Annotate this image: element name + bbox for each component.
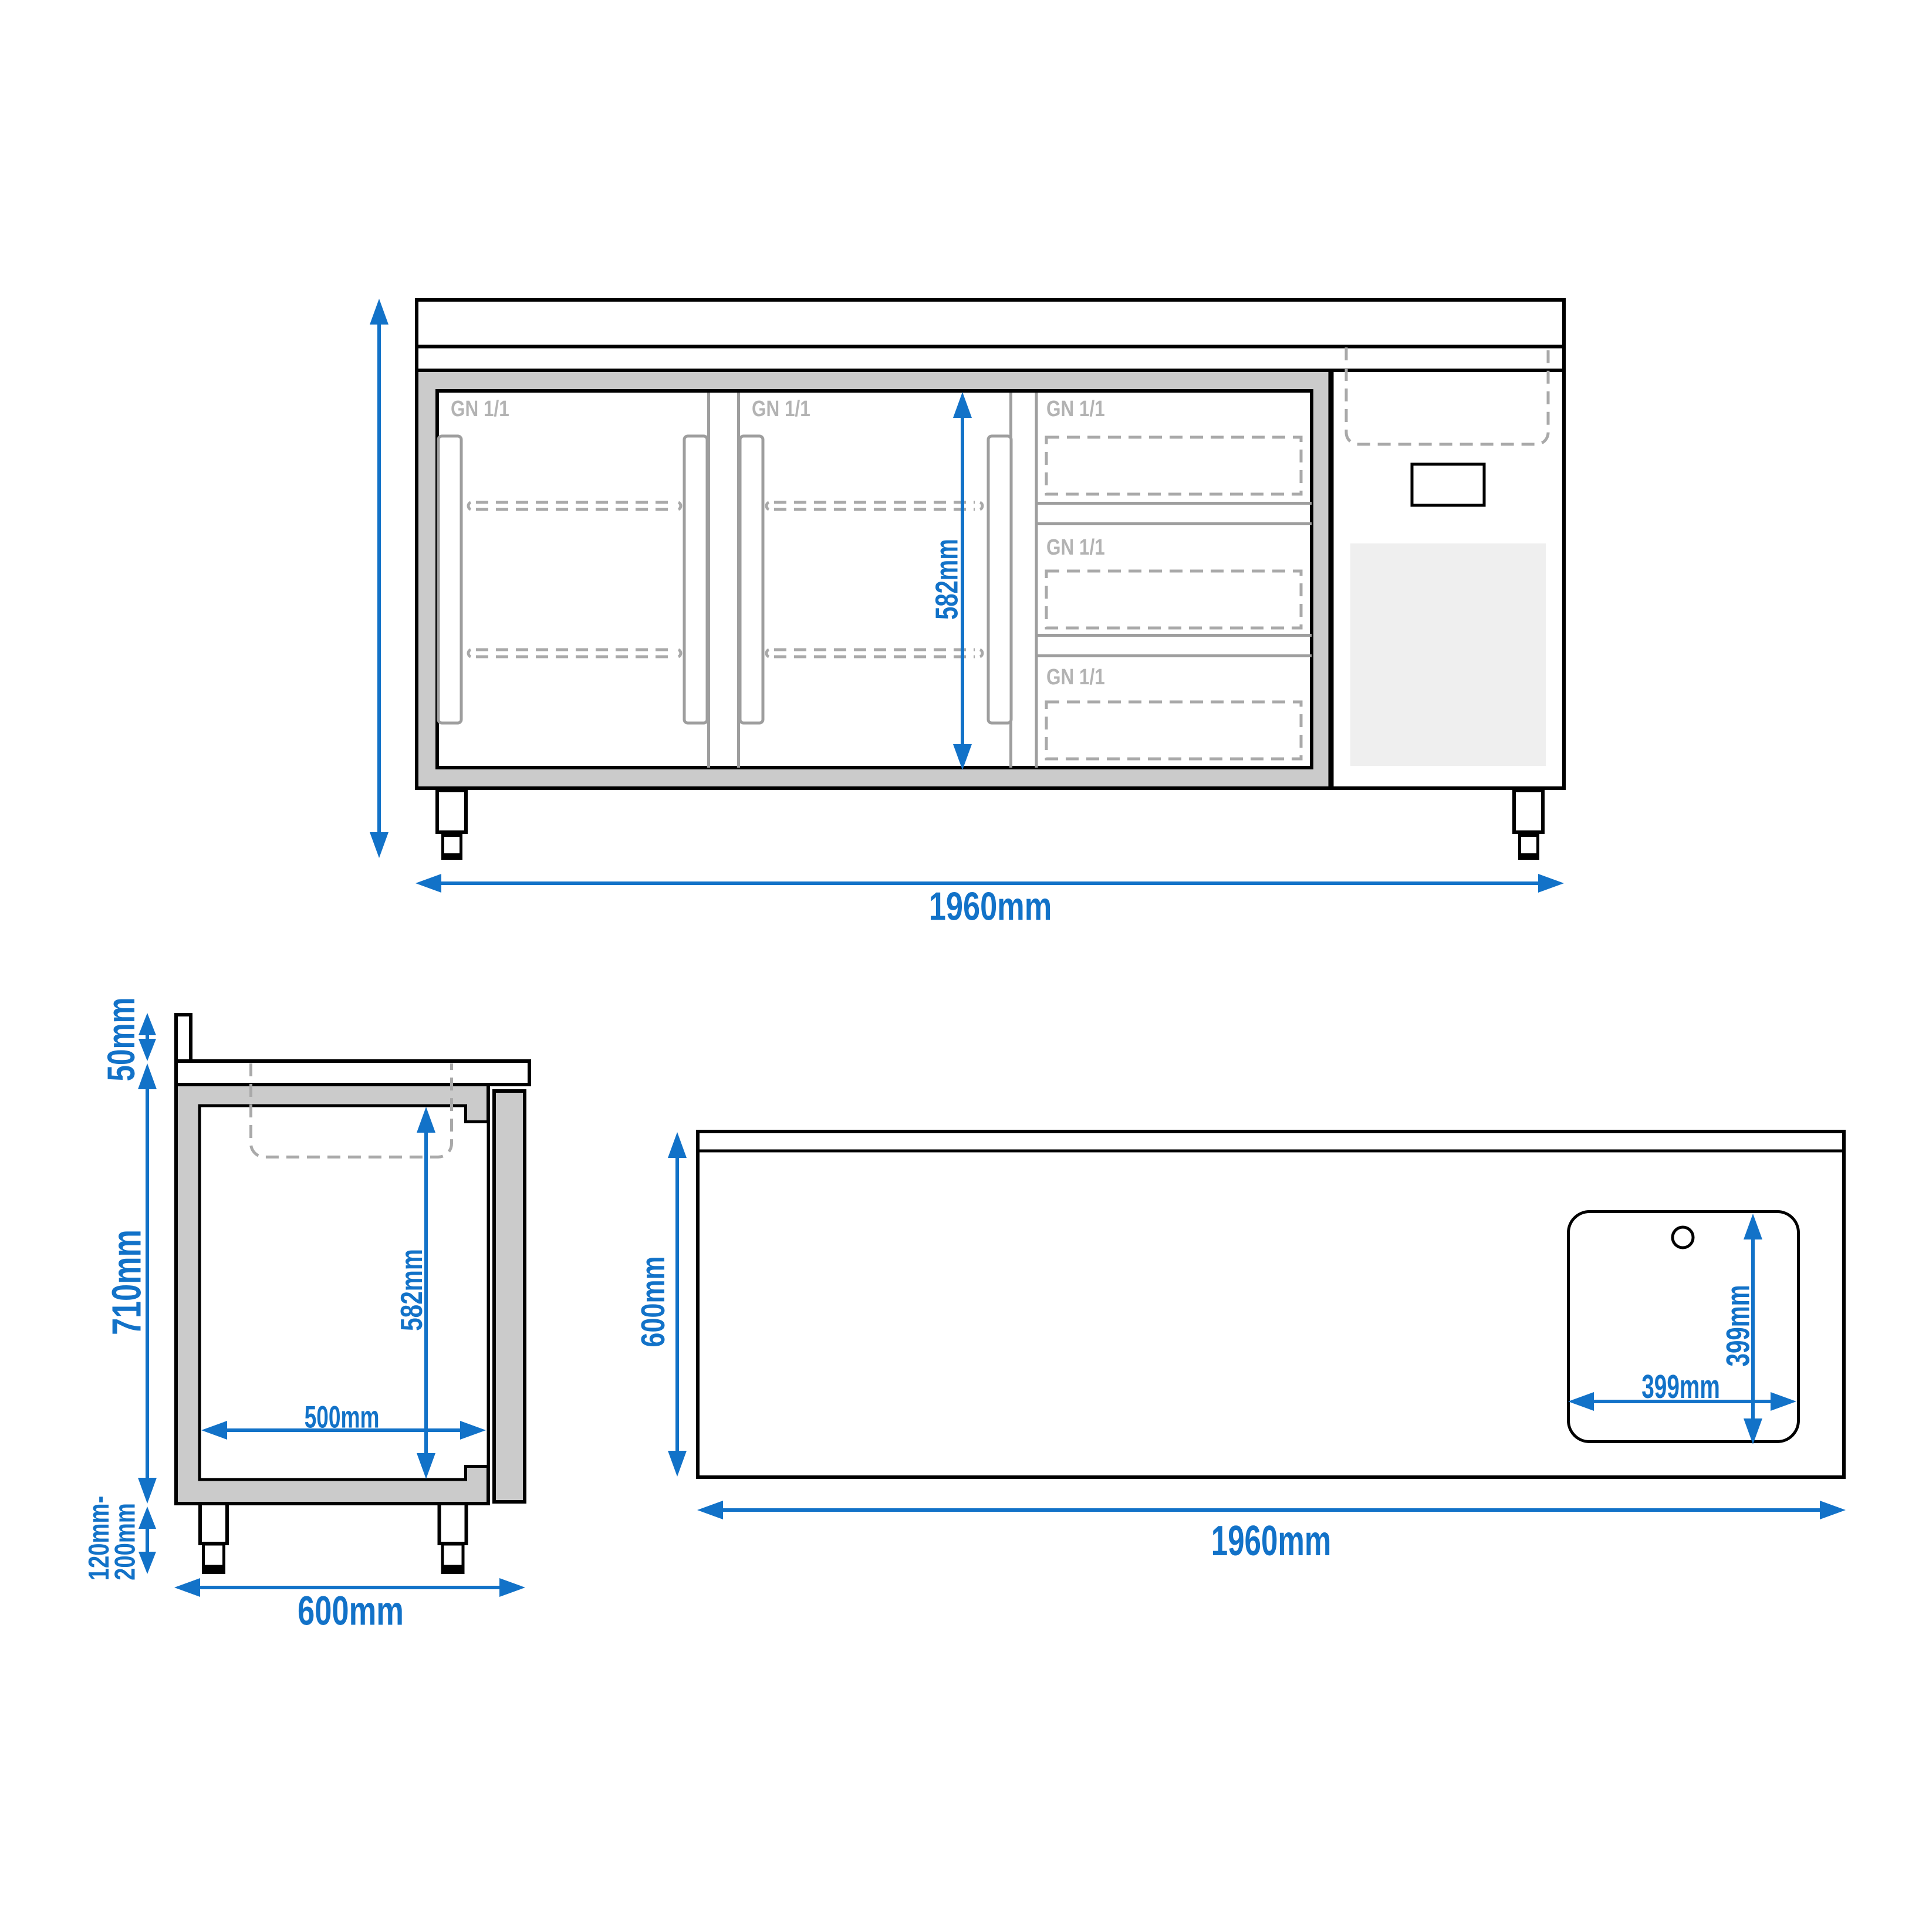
svg-text:GN 1/1: GN 1/1 — [752, 396, 810, 421]
svg-text:GN 1/1: GN 1/1 — [1046, 535, 1105, 560]
svg-text:600mm: 600mm — [298, 1588, 404, 1634]
svg-text:GN 1/1: GN 1/1 — [1046, 396, 1105, 421]
svg-text:500mm: 500mm — [305, 1400, 380, 1434]
svg-text:399mm: 399mm — [1720, 1285, 1756, 1367]
svg-text:1960mm: 1960mm — [1211, 1518, 1332, 1565]
svg-text:50mm: 50mm — [100, 997, 143, 1081]
svg-text:1960mm: 1960mm — [929, 884, 1052, 928]
svg-text:200mm: 200mm — [109, 1503, 141, 1580]
svg-text:GN 1/1: GN 1/1 — [1046, 664, 1105, 690]
svg-text:399mm: 399mm — [1641, 1369, 1720, 1406]
svg-text:710mm: 710mm — [104, 1230, 150, 1335]
svg-text:GN 1/1: GN 1/1 — [451, 396, 509, 421]
svg-text:582mm: 582mm — [930, 539, 965, 620]
svg-text:600mm: 600mm — [634, 1256, 671, 1347]
svg-text:582mm: 582mm — [394, 1249, 428, 1331]
